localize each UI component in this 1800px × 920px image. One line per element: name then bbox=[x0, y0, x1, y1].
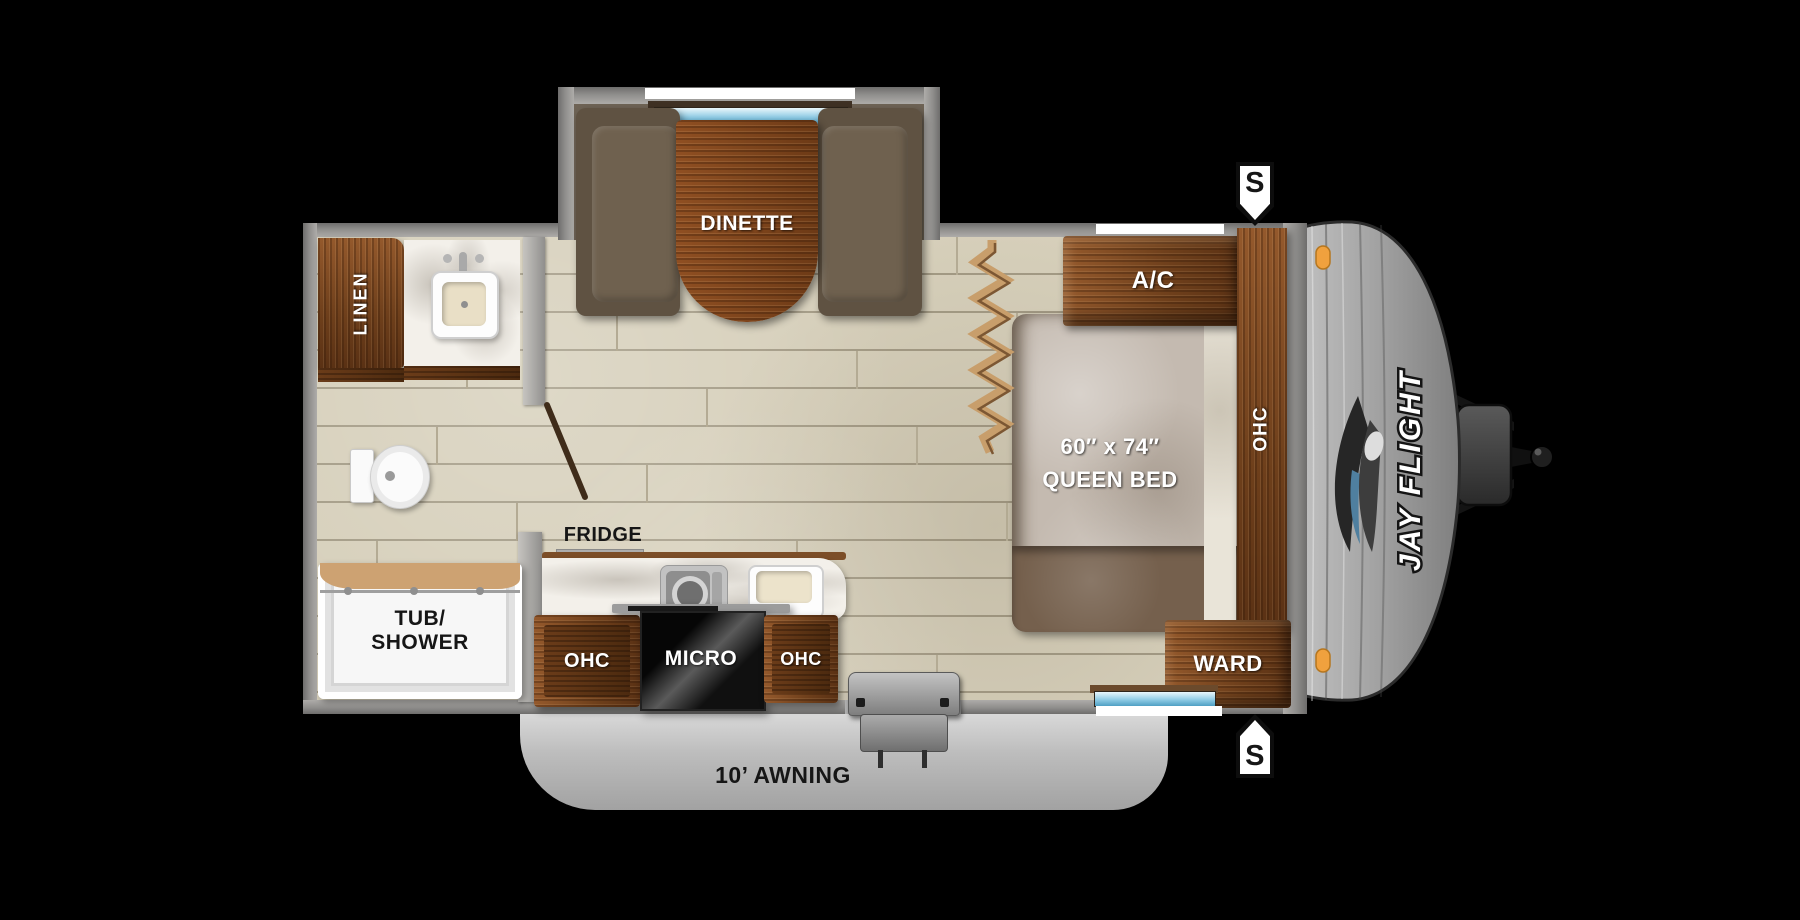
bath-vanity-front bbox=[404, 366, 520, 380]
kitchen-ohc-left-label: OHC bbox=[534, 615, 640, 707]
kitchen-ohc-right: OHC bbox=[764, 615, 838, 703]
hitch-ball-highlight bbox=[1535, 449, 1542, 456]
bath-faucet-handle-right bbox=[475, 254, 484, 263]
entry-step-upper bbox=[848, 672, 960, 716]
bedroom-ohc-cabinet: OHC bbox=[1237, 228, 1287, 630]
tub-label-line2: SHOWER bbox=[340, 631, 500, 655]
front-cap: JAY FLIGHT bbox=[1270, 200, 1570, 730]
bed-head-sheet bbox=[1204, 318, 1236, 628]
tub-shower: TUB/ SHOWER bbox=[318, 563, 522, 699]
bath-faucet-handle-left bbox=[443, 254, 452, 263]
kitchen-ohc-left: OHC bbox=[534, 615, 640, 707]
speaker-badge-bottom: S bbox=[1236, 714, 1274, 778]
kitchen-ohc-right-label: OHC bbox=[764, 615, 838, 703]
bedroom-window-sill-marker bbox=[1096, 706, 1222, 716]
tub-shower-label: TUB/ SHOWER bbox=[340, 607, 500, 655]
ac-label: A/C bbox=[1063, 236, 1243, 326]
curtain-hook-3 bbox=[476, 587, 484, 595]
stove-controls bbox=[712, 572, 722, 608]
propane-cover bbox=[1457, 405, 1511, 505]
bed-type-label: QUEEN BED bbox=[1012, 463, 1208, 496]
curtain-hook-1 bbox=[344, 587, 352, 595]
entry-step-leg-left bbox=[878, 750, 883, 768]
hitch-ball bbox=[1531, 446, 1553, 468]
dinette-bench-right-cushion bbox=[822, 126, 908, 302]
bed-label: 60″ x 74″ QUEEN BED bbox=[1012, 430, 1208, 496]
slideout-wall-right bbox=[924, 87, 940, 240]
speaker-badge-top: S bbox=[1236, 162, 1274, 226]
marker-light-top bbox=[1316, 246, 1330, 269]
speaker-top-label: S bbox=[1236, 167, 1274, 200]
bath-partition-upper bbox=[523, 237, 545, 405]
speaker-bottom-label: S bbox=[1236, 740, 1274, 773]
entry-step-lower bbox=[860, 714, 948, 752]
microwave-label: MICRO bbox=[642, 613, 760, 705]
linen-cabinet-base bbox=[318, 368, 404, 382]
bedroom-ohc-label: OHC bbox=[1251, 406, 1273, 451]
dinette-label: DINETTE bbox=[676, 212, 818, 236]
bed-size-label: 60″ x 74″ bbox=[1012, 430, 1208, 463]
toilet-bowl bbox=[370, 445, 430, 509]
marker-light-bottom bbox=[1316, 649, 1330, 672]
microwave: MICRO bbox=[640, 611, 766, 711]
floorplan-stage: 10’ AWNING JAY FL bbox=[0, 0, 1800, 920]
tub-label-line1: TUB/ bbox=[340, 607, 500, 631]
linen-label: LINEN bbox=[351, 271, 372, 335]
linen-label-wrap: LINEN bbox=[318, 238, 404, 368]
entry-step-hinge-right bbox=[940, 698, 949, 707]
linen-cabinet: LINEN bbox=[318, 238, 404, 368]
front-window-marker bbox=[1096, 224, 1224, 234]
entry-step-leg-right bbox=[922, 750, 927, 768]
dinette-bench-left-cushion bbox=[592, 126, 678, 302]
slideout-wall-left bbox=[558, 87, 574, 240]
dinette-window-marker bbox=[645, 88, 855, 99]
shower-curtain bbox=[320, 563, 520, 589]
ac-cabinet: A/C bbox=[1063, 236, 1243, 326]
bath-sink-drain bbox=[461, 301, 468, 308]
entry-step-hinge-left bbox=[856, 698, 865, 707]
toilet-flush-button bbox=[385, 471, 395, 481]
awning-label: 10’ AWNING bbox=[663, 762, 903, 789]
brand-logo-text: JAY FLIGHT bbox=[1394, 369, 1427, 571]
curtain-hook-2 bbox=[410, 587, 418, 595]
bath-sink bbox=[431, 271, 499, 339]
wall-left bbox=[303, 223, 317, 714]
kitchen-sink-basin bbox=[756, 571, 812, 603]
bedroom-ohc-wrap: OHC bbox=[1237, 228, 1287, 630]
wall-top-left-segment bbox=[303, 223, 564, 237]
queen-bed: 60″ x 74″ QUEEN BED bbox=[1012, 314, 1238, 632]
bedroom-window bbox=[1094, 691, 1216, 707]
dinette-table: DINETTE bbox=[676, 120, 818, 322]
awning: 10’ AWNING bbox=[520, 706, 1168, 810]
fridge-label: FRIDGE bbox=[548, 524, 658, 547]
